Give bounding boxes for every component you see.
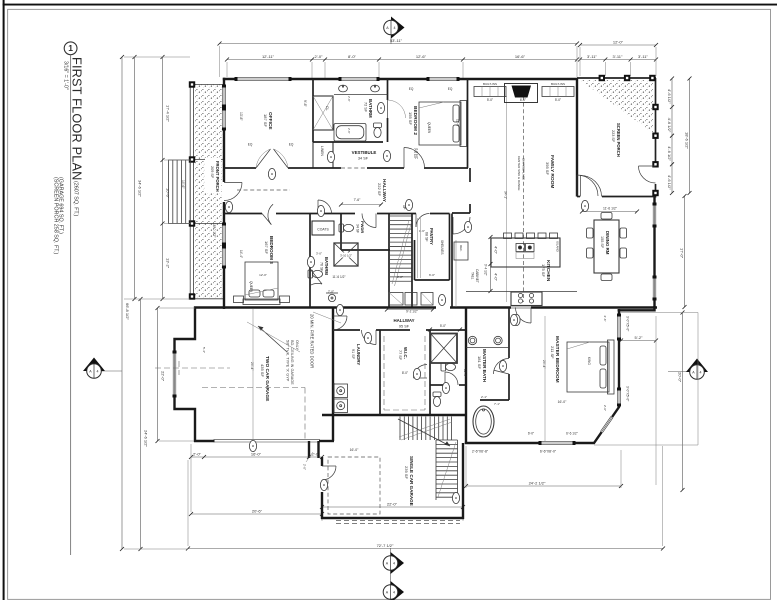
svg-text:3'-11": 3'-11" bbox=[613, 54, 623, 59]
svg-text:REF.: REF. bbox=[459, 245, 463, 252]
svg-text:12'-0": 12'-0" bbox=[259, 273, 267, 277]
svg-text:3'-0": 3'-0" bbox=[316, 252, 322, 256]
svg-text:34'-1": 34'-1" bbox=[504, 191, 508, 199]
svg-text:TALL: TALL bbox=[471, 272, 475, 280]
svg-text:22'-0": 22'-0" bbox=[387, 501, 398, 506]
svg-text:COATS: COATS bbox=[317, 228, 329, 232]
svg-text:2'-6": 2'-6" bbox=[347, 96, 351, 102]
svg-text:LAUNDRY: LAUNDRY bbox=[356, 344, 361, 365]
svg-text:435 SF: 435 SF bbox=[260, 364, 265, 377]
svg-text:13'-8": 13'-8" bbox=[239, 112, 243, 121]
svg-text:6'-6 1/2": 6'-6 1/2" bbox=[566, 432, 578, 436]
svg-text:4'-6 1/2": 4'-6 1/2" bbox=[667, 89, 672, 104]
svg-text:4'-6 1/2": 4'-6 1/2" bbox=[667, 146, 672, 161]
svg-text:155 SF: 155 SF bbox=[408, 112, 413, 125]
svg-text:DINING RM: DINING RM bbox=[605, 231, 610, 255]
svg-text:2'-6"X6'-8": 2'-6"X6'-8" bbox=[472, 450, 489, 454]
svg-text:PWDR: PWDR bbox=[360, 221, 365, 233]
svg-text:10'-6": 10'-6" bbox=[181, 180, 185, 189]
svg-text:16'-0": 16'-0" bbox=[558, 400, 567, 404]
svg-text:12'-0": 12'-0" bbox=[613, 39, 624, 44]
svg-text:4: 4 bbox=[700, 371, 702, 375]
svg-text:9'-2 1/2": 9'-2 1/2" bbox=[406, 310, 418, 314]
svg-text:3'-10 1/2": 3'-10 1/2" bbox=[340, 254, 352, 258]
svg-text:6'-6"X8'-0": 6'-6"X8'-0" bbox=[540, 450, 557, 454]
svg-text:6'-0": 6'-0" bbox=[520, 98, 526, 102]
svg-text:72'-7 1/2": 72'-7 1/2" bbox=[377, 543, 394, 548]
svg-text:TWO CAR GARAGE: TWO CAR GARAGE bbox=[264, 356, 270, 402]
svg-text:5/8" THK. TYPE 'X' GYP: 5/8" THK. TYPE 'X' GYP bbox=[286, 340, 290, 382]
svg-text:34 SF: 34 SF bbox=[356, 224, 360, 233]
svg-text:SHELVES: SHELVES bbox=[440, 240, 444, 254]
svg-text:3'-0"X5'-0": 3'-0"X5'-0" bbox=[626, 316, 630, 332]
svg-text:7'-6": 7'-6" bbox=[354, 198, 362, 202]
svg-text:KING: KING bbox=[587, 357, 591, 365]
svg-text:4: 4 bbox=[97, 370, 99, 374]
svg-text:12'-11": 12'-11" bbox=[262, 54, 275, 59]
svg-text:ON FIREPLACE: ON FIREPLACE bbox=[522, 158, 526, 180]
svg-text:8'-0": 8'-0" bbox=[402, 371, 408, 375]
svg-text:167 SF: 167 SF bbox=[264, 241, 269, 254]
svg-text:14'-4": 14'-4" bbox=[239, 250, 243, 258]
svg-text:4: 4 bbox=[393, 562, 395, 566]
svg-text:20'-0": 20'-0" bbox=[677, 372, 682, 383]
svg-text:91 SF: 91 SF bbox=[351, 349, 355, 360]
svg-text:9'-8": 9'-8" bbox=[303, 100, 307, 108]
svg-text:16'-0": 16'-0" bbox=[350, 448, 359, 452]
svg-text:12'-6": 12'-6" bbox=[463, 369, 467, 377]
svg-text:20'-4": 20'-4" bbox=[542, 360, 546, 369]
svg-text:223 SF: 223 SF bbox=[611, 130, 615, 143]
svg-text:5'-0": 5'-0" bbox=[487, 98, 493, 102]
svg-text:1'-6": 1'-6" bbox=[419, 229, 425, 233]
svg-text:12'-6": 12'-6" bbox=[416, 54, 427, 59]
svg-text:34 SF: 34 SF bbox=[358, 157, 369, 161]
svg-text:SCREEN PORCH: SCREEN PORCH bbox=[616, 123, 621, 157]
svg-text:(SCREEN PORCH 258 SQ. FT.): (SCREEN PORCH 258 SQ. FT.) bbox=[53, 177, 59, 254]
svg-text:211 SF: 211 SF bbox=[550, 346, 555, 359]
svg-text:20'-4": 20'-4" bbox=[250, 362, 254, 371]
svg-text:EQ: EQ bbox=[289, 143, 294, 147]
svg-text:181 SF: 181 SF bbox=[477, 356, 482, 369]
svg-text:5'-0": 5'-0" bbox=[440, 324, 446, 328]
svg-text:EQ: EQ bbox=[409, 87, 414, 91]
svg-text:72 SF: 72 SF bbox=[364, 102, 368, 113]
svg-text:6'-0": 6'-0" bbox=[528, 432, 534, 436]
svg-text:7'-0": 7'-0" bbox=[328, 290, 334, 294]
svg-text:16'-0": 16'-0" bbox=[251, 451, 262, 456]
svg-text:6'-0": 6'-0" bbox=[429, 273, 435, 277]
svg-text:34'-6 1/2": 34'-6 1/2" bbox=[138, 180, 143, 197]
svg-text:W.I.C.: W.I.C. bbox=[403, 347, 408, 359]
svg-text:5'-0": 5'-0" bbox=[555, 98, 561, 102]
svg-text:ISLAND: ISLAND bbox=[556, 241, 560, 253]
svg-text:2'-0": 2'-0" bbox=[303, 464, 307, 470]
svg-text:16'-6": 16'-6" bbox=[515, 54, 526, 59]
svg-text:2'-1": 2'-1" bbox=[481, 395, 487, 399]
svg-text:FRONT PORCH: FRONT PORCH bbox=[215, 161, 220, 192]
svg-text:17'-0": 17'-0" bbox=[679, 248, 684, 259]
svg-text:HALLWAY: HALLWAY bbox=[393, 318, 414, 323]
svg-text:8'-0": 8'-0" bbox=[348, 54, 357, 59]
svg-text:QUEEN: QUEEN bbox=[427, 122, 431, 134]
svg-text:187 SF: 187 SF bbox=[263, 114, 268, 127]
svg-text:175 SF: 175 SF bbox=[541, 264, 546, 277]
svg-text:5'-2": 5'-2" bbox=[635, 335, 644, 340]
svg-text:BUILT-INS: BUILT-INS bbox=[483, 82, 497, 86]
svg-text:FIRST FLOOR PLAN: FIRST FLOOR PLAN bbox=[70, 57, 84, 181]
svg-text:4'-6 1/2": 4'-6 1/2" bbox=[667, 118, 672, 133]
svg-text:4'-6 1/2": 4'-6 1/2" bbox=[667, 175, 672, 190]
svg-text:68 SF: 68 SF bbox=[425, 232, 429, 242]
svg-text:3/16" = 1'-0": 3/16" = 1'-0" bbox=[63, 61, 69, 90]
svg-text:7'-1": 7'-1" bbox=[494, 402, 500, 406]
svg-text:209 SF: 209 SF bbox=[210, 166, 214, 179]
svg-text:5'-4": 5'-4" bbox=[202, 347, 206, 353]
svg-text:CL.: CL. bbox=[325, 106, 329, 111]
svg-text:222 SF: 222 SF bbox=[377, 183, 382, 196]
svg-text:BATHRM: BATHRM bbox=[324, 257, 329, 275]
svg-text:2'-6": 2'-6" bbox=[603, 405, 607, 411]
svg-text:CENTER SINK & RANGE: CENTER SINK & RANGE bbox=[517, 156, 521, 191]
svg-text:155 SF: 155 SF bbox=[600, 236, 604, 249]
svg-text:BUILT-INS: BUILT-INS bbox=[551, 82, 565, 86]
svg-text:20 MIN. FIRE RATED DOOR: 20 MIN. FIRE RATED DOOR bbox=[310, 314, 315, 368]
svg-text:QUEEN: QUEEN bbox=[249, 281, 253, 293]
svg-text:3'-0"X5'-0": 3'-0"X5'-0" bbox=[626, 386, 630, 402]
svg-text:LINEN: LINEN bbox=[320, 146, 324, 157]
svg-text:3'-0 1/2": 3'-0 1/2" bbox=[415, 148, 419, 159]
svg-text:4: 4 bbox=[394, 26, 396, 30]
svg-text:EQ: EQ bbox=[448, 87, 453, 91]
svg-text:16'-0 1/2": 16'-0 1/2" bbox=[212, 223, 216, 238]
svg-text:PANTRY: PANTRY bbox=[429, 228, 434, 245]
svg-text:VESTIBULE: VESTIBULE bbox=[352, 150, 377, 155]
svg-text:239 SF: 239 SF bbox=[404, 466, 409, 479]
svg-text:12'-6": 12'-6" bbox=[456, 119, 460, 127]
svg-text:2'-8": 2'-8" bbox=[397, 275, 403, 279]
svg-text:2'-0": 2'-0" bbox=[315, 54, 324, 59]
svg-text:1: 1 bbox=[68, 43, 73, 53]
svg-text:3'-11": 3'-11" bbox=[587, 54, 597, 59]
svg-text:24'-6 1/2": 24'-6 1/2" bbox=[144, 430, 149, 447]
svg-text:CABINET: CABINET bbox=[475, 269, 479, 283]
svg-text:20'-6": 20'-6" bbox=[252, 508, 263, 513]
svg-text:77 SF: 77 SF bbox=[398, 350, 402, 361]
svg-text:4: 4 bbox=[393, 591, 395, 595]
svg-text:SINGLE CAR GARAGE: SINGLE CAR GARAGE bbox=[409, 456, 414, 506]
svg-text:13'-2": 13'-2" bbox=[166, 258, 171, 269]
svg-text:EQ: EQ bbox=[248, 143, 253, 147]
svg-text:4'-0": 4'-0" bbox=[494, 246, 499, 255]
svg-text:2'-6": 2'-6" bbox=[347, 128, 351, 134]
svg-text:18'-6 1/2": 18'-6 1/2" bbox=[684, 132, 689, 149]
svg-text:2'-0": 2'-0" bbox=[193, 451, 202, 456]
svg-text:17'-4 1/2": 17'-4 1/2" bbox=[166, 105, 171, 122]
svg-text:4'-0": 4'-0" bbox=[494, 273, 499, 282]
svg-text:2'-6": 2'-6" bbox=[603, 316, 607, 322]
svg-text:11'-6 1/2": 11'-6 1/2" bbox=[603, 207, 618, 211]
svg-text:MASTER BEDROOM: MASTER BEDROOM bbox=[554, 336, 560, 383]
svg-text:3'-11": 3'-11" bbox=[638, 54, 648, 59]
svg-text:95 SF: 95 SF bbox=[399, 325, 410, 329]
svg-text:11'-6 1/2": 11'-6 1/2" bbox=[332, 275, 345, 279]
svg-text:22'-0": 22'-0" bbox=[161, 371, 166, 382]
svg-text:395 SF: 395 SF bbox=[545, 162, 550, 175]
svg-text:(2607 SQ. FT.): (2607 SQ. FT.) bbox=[73, 181, 79, 217]
svg-text:9'-4 1/2": 9'-4 1/2" bbox=[484, 264, 488, 276]
svg-text:24'-2 1/2": 24'-2 1/2" bbox=[529, 480, 546, 485]
svg-text:53'-11": 53'-11" bbox=[390, 38, 403, 43]
svg-text:ONLY: ONLY bbox=[295, 340, 299, 351]
svg-text:BATHRM: BATHRM bbox=[368, 99, 373, 118]
svg-text:66'-8 1/2": 66'-8 1/2" bbox=[125, 303, 130, 320]
